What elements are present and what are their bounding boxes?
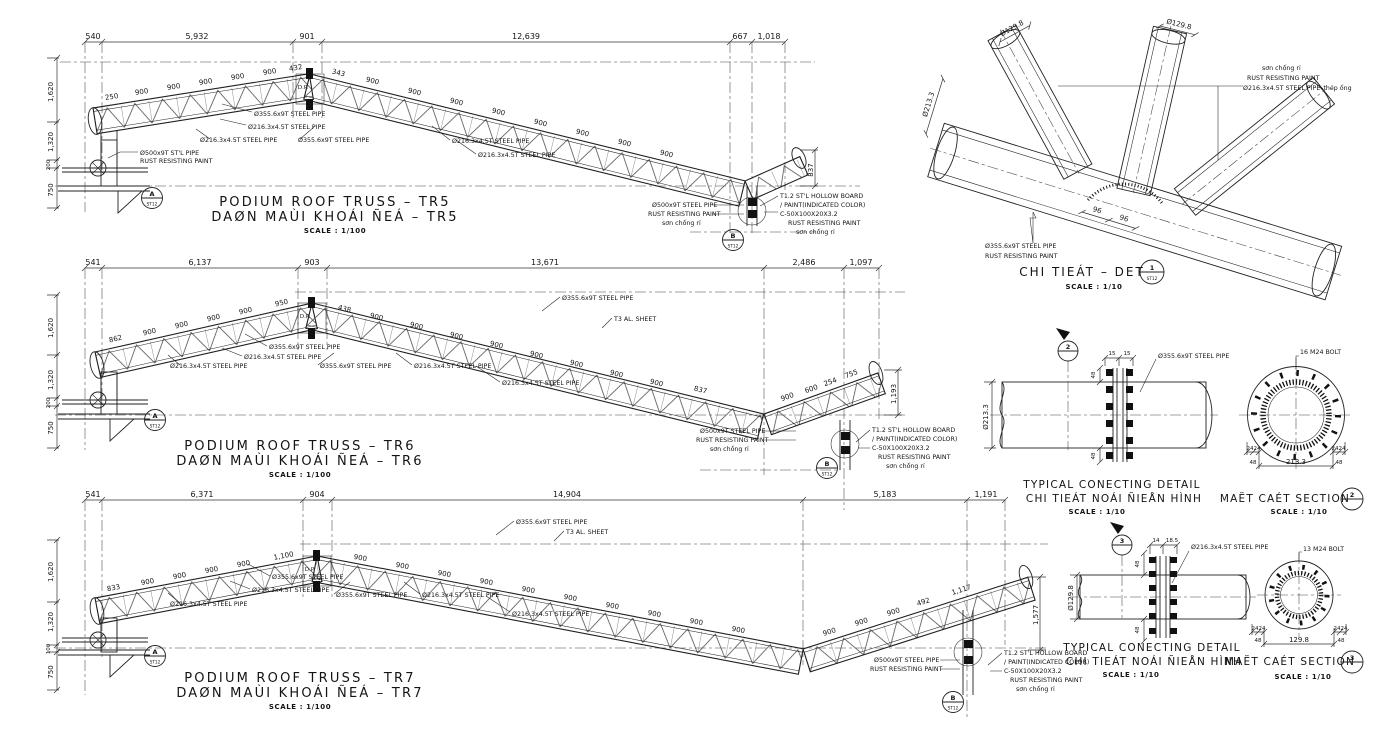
scale-label: SCALE : 1/10 <box>1271 508 1328 516</box>
note-label: / PAINT(INDICATED COLOR) <box>780 202 865 209</box>
dim-label: 12,639 <box>512 32 540 41</box>
note-label: C-50X100X20X3.2 <box>1004 668 1062 675</box>
note-label: C-50X100X20X3.2 <box>872 445 930 452</box>
dim-label: 14 <box>1153 538 1160 544</box>
seg-dim: 1,100 <box>273 550 294 562</box>
pipe-label: Ø216.3x4.5T STEEL PIPE <box>170 362 247 370</box>
pipe-label: Ø355.6x9T STEEL PIPE <box>1158 352 1229 360</box>
section-title: MAËT CAÉT SECTION <box>1220 492 1350 505</box>
seg-dim: 900 <box>689 617 704 627</box>
callout-letter: 1 <box>1150 264 1155 272</box>
note-label: T1.2 ST'L HOLLOW BOARD <box>779 193 863 200</box>
section-2: 16 M24 BOLT 24 24 48 213.3 24 24 48 <box>1239 349 1353 472</box>
pipe-label: Ø216.3x4.5T STEEL PIPE–thép ống <box>1243 84 1352 92</box>
dim-label: 200 <box>46 159 52 170</box>
detail-title: TYPICAL CONECTING DETAIL <box>1022 479 1200 491</box>
seg-dim: 900 <box>449 97 464 108</box>
dim-label: 1,320 <box>47 370 55 390</box>
seg-dim: 900 <box>822 626 837 638</box>
brace-pipe-right <box>1171 76 1336 218</box>
seg-dim: 900 <box>731 625 746 635</box>
seg-dim: 492 <box>916 596 931 608</box>
dim-label: 1,620 <box>47 562 55 582</box>
scale-label: SCALE : 1/100 <box>269 703 331 711</box>
dim-label: 48 <box>1135 626 1141 633</box>
note-label: C-50X100X20X3.2 <box>780 211 838 218</box>
truss-title-vi: DAØN MAÙI KHOÁI ÑEÁ – TR6 <box>176 453 423 469</box>
pipe-label: Ø216.3x4.5T STEEL PIPE <box>1191 543 1268 551</box>
callout-number: 2 <box>1350 491 1355 499</box>
pipe-label: Ø500x9T STEEL PIPE <box>700 427 765 435</box>
dim-label: 48 <box>1255 638 1262 644</box>
joint-detail: Ø129.8 Ø129.8 Ø213.3 96 96 sơn chống rỉ … <box>916 15 1352 302</box>
connect-detail-3: 14 18.5 48 48 Ø129.8 Ø216.3x4.5T STEEL P… <box>1062 522 1363 681</box>
seg-dim: 900 <box>238 306 253 317</box>
dim-label: 200 <box>46 397 52 408</box>
support-left-tr7: A ST12 <box>58 618 166 677</box>
note-label: sơn chống rỉ <box>1262 64 1301 72</box>
truss-title-vi: DAØN MAÙI KHOÁI ÑEÁ – TR7 <box>176 685 423 701</box>
dim-label: 1,018 <box>758 32 781 41</box>
truss-tr6: 541 6,137 903 13,671 2,486 1,097 1,620 1… <box>46 258 957 510</box>
pipe-label: Ø216.3x4.5T STEEL PIPE <box>414 362 491 370</box>
detail-title-vi: CHI TIEÁT NOÁI ÑIEÅN HÌNH <box>1026 492 1202 505</box>
dp-label: D.P. <box>298 85 308 91</box>
scale-label: SCALE : 1/100 <box>269 471 331 479</box>
scale-label: SCALE : 1/10 <box>1066 283 1123 291</box>
seg-dim: 254 <box>823 376 839 388</box>
pipe-label: Ø500x9T STEEL PIPE <box>652 201 717 209</box>
pipe-label: Ø216.3x4.5T STEEL PIPE <box>452 137 529 145</box>
note-label: RUST RESISTING PAINT <box>1010 677 1083 684</box>
seg-dim: 900 <box>134 87 148 97</box>
note-label: T1.2 ST'L HOLLOW BOARD <box>871 427 955 434</box>
bolt-label: 16 M24 BOLT <box>1300 349 1341 356</box>
dp-label: D.P. <box>305 567 315 573</box>
seg-dim: 900 <box>198 77 212 87</box>
dim-label: 750 <box>47 183 55 196</box>
dim-label: 96 <box>1118 213 1129 223</box>
callout-sheet: ST12 <box>1147 276 1158 282</box>
seg-dim: 900 <box>854 616 869 628</box>
dim-label: 1,097 <box>850 258 873 267</box>
seg-dim: 900 <box>437 569 452 579</box>
pipe-label: Ø216.3x4.5T STEEL PIPE <box>244 353 321 361</box>
note-label: RUST RESISTING PAINT <box>140 158 213 165</box>
dim-label: 13,671 <box>531 258 559 267</box>
connect-detail-2: 15 15 48 48 Ø213.3 Ø355.6x9T STEEL PIPE … <box>982 328 1363 516</box>
dim-label: 1,577 <box>1032 605 1040 625</box>
callout-number: 3 <box>1350 654 1355 662</box>
dim-label: Ø129.8 <box>1166 18 1193 32</box>
callout-number: 2 <box>1066 343 1071 351</box>
note-label: sơn chống rỉ <box>796 228 835 236</box>
callout-letter: A <box>149 190 154 198</box>
pipe-label: Ø355.6x9T STEEL PIPE <box>516 518 587 526</box>
note-label: RUST RESISTING PAINT <box>1247 75 1320 82</box>
note-label: RUST RESISTING PAINT <box>878 454 951 461</box>
dim-label: 6,137 <box>189 258 212 267</box>
dp-label: D.P. <box>300 314 310 320</box>
seg-dim: 900 <box>617 138 632 149</box>
callout-sheet: ST12 <box>150 660 161 666</box>
support-left-tr5: A ST12 <box>58 131 163 213</box>
scale-label: SCALE : 1/10 <box>1103 671 1160 679</box>
seg-dim: 900 <box>563 593 578 603</box>
seg-dim: 900 <box>142 327 157 338</box>
dim-label: 5,932 <box>186 32 209 41</box>
pipe-label: Ø500x9T STEEL PIPE <box>874 656 939 664</box>
callout-sheet: ST12 <box>948 706 959 712</box>
dim-label: 837 <box>807 163 815 176</box>
pipe-label: Ø355.6x9T STEEL PIPE <box>269 343 340 351</box>
pipe-label: Ø355.6x9T STEEL PIPE <box>985 242 1056 250</box>
pipe-label: Ø355.6x9T STEEL PIPE <box>320 362 391 370</box>
chord-dim: Ø213.3 <box>916 73 947 138</box>
seg-dim: 900 <box>886 606 901 618</box>
support-left-tr6: A ST12 <box>58 372 166 441</box>
seg-dim: 900 <box>395 561 410 571</box>
callout-sheet: ST12 <box>822 472 833 478</box>
truss-tr7: 541 6,371 904 14,904 5,183 1,191 1,620 1… <box>46 490 1089 718</box>
seg-dim: 900 <box>353 553 368 563</box>
pipe-label: Ø216.3x4.5T STEEL PIPE <box>512 610 589 618</box>
dim-label: 129.8 <box>1289 636 1309 644</box>
callout-letter: B <box>731 232 736 240</box>
seg-dim: 900 <box>780 391 795 403</box>
seg-dim: 900 <box>206 313 221 324</box>
truss-title-vi: DAØN MAÙI KHOÁI ÑEÁ – TR5 <box>211 209 458 225</box>
dim-label: 100 <box>46 643 52 654</box>
dim-label: 24 <box>1339 446 1346 452</box>
dim-label: 1,620 <box>47 82 55 102</box>
brace-pipe-mid <box>1116 22 1187 197</box>
seg-dim: 862 <box>108 334 123 345</box>
dim-label: 1,193 <box>890 384 898 404</box>
pipe-label: Ø355.6x9T STEEL PIPE <box>336 591 407 599</box>
note-label: sơn chống rỉ <box>886 462 925 470</box>
seg-dim: 900 <box>140 577 155 587</box>
brace-pipe-left <box>986 22 1093 181</box>
note-label: sơn chống rỉ <box>1016 685 1055 693</box>
pipe-label: Ø355.6x9T STEEL PIPE <box>298 136 369 144</box>
dim-label: 750 <box>47 665 55 678</box>
truss-tr5: 540 5,932 901 12,639 667 1,018 1,620 1,3… <box>46 32 865 251</box>
scale-label: SCALE : 1/100 <box>304 227 366 235</box>
seg-dim: 900 <box>172 571 187 581</box>
seg-dim: 900 <box>236 559 251 569</box>
seg-dim: 900 <box>365 76 380 87</box>
detail-title: TYPICAL CONECTING DETAIL <box>1062 642 1240 654</box>
seg-dim: 600 <box>804 383 819 395</box>
dim-label: 540 <box>85 32 100 41</box>
dim-label: Ø213.3 <box>982 404 990 430</box>
truss-drawing-svg: 540 5,932 901 12,639 667 1,018 1,620 1,3… <box>0 0 1381 739</box>
dim-label: 903 <box>304 258 319 267</box>
seg-dim: 900 <box>407 87 422 98</box>
seg-dim: 900 <box>491 107 506 118</box>
pipe-label: Ø355.6x9T STEEL PIPE <box>562 294 633 302</box>
bolt-label: 13 M24 BOLT <box>1303 546 1344 553</box>
seg-dim: 833 <box>106 583 121 593</box>
pipe-label: Ø216.3x4.5T STEEL PIPE <box>200 136 277 144</box>
pipe-label: Ø216.3x4.5T STEEL PIPE <box>478 151 555 159</box>
dim-label: 5,183 <box>874 490 897 499</box>
dim-label: 750 <box>47 421 55 434</box>
seg-dim: 900 <box>533 118 548 129</box>
dim-label: 48 <box>1091 371 1097 378</box>
dim-label: 213.3 <box>1286 458 1306 466</box>
seg-dim: 900 <box>174 320 189 331</box>
dim-label: 1,191 <box>975 490 998 499</box>
note-label: T3 AL. SHEET <box>613 316 656 323</box>
dim-label: 48 <box>1336 460 1343 466</box>
dim-label: 901 <box>299 32 314 41</box>
detail-title: CHI TIEÁT – DET <box>1019 264 1145 279</box>
dim-label: Ø129.8 <box>1067 585 1075 611</box>
truss-title: PODIUM ROOF TRUSS – TR5 <box>219 195 451 210</box>
dim-label: 24 <box>1259 626 1266 632</box>
dim-label: 2,486 <box>793 258 816 267</box>
gap-dim: 96 96 <box>1078 202 1141 233</box>
dim-label: Ø213.3 <box>921 91 936 118</box>
dim-label: 48 <box>1135 560 1141 567</box>
dim-label: 15 <box>1109 351 1116 357</box>
pipe-label: Ø216.3x4.5T STEEL PIPE <box>502 379 579 387</box>
callout-letter: B <box>951 694 956 702</box>
cad-drawing-sheet: 540 5,932 901 12,639 667 1,018 1,620 1,3… <box>0 0 1381 739</box>
note-label: RUST RESISTING PAINT <box>788 220 861 227</box>
seg-dim: 343 <box>331 68 346 79</box>
note-label: sơn chống rỉ <box>662 219 701 227</box>
truss-title: PODIUM ROOF TRUSS – TR6 <box>184 439 416 454</box>
note-label: RUST RESISTING PAINT <box>870 666 943 673</box>
dim-label: 24 <box>1254 446 1261 452</box>
callout-letter: A <box>152 412 157 420</box>
note-label: RUST RESISTING PAINT <box>648 211 721 218</box>
callout-sheet: ST12 <box>147 202 158 208</box>
dim-label: 48 <box>1338 638 1345 644</box>
pipe-label: Ø500x9T ST'L PIPE <box>140 149 199 157</box>
pipe-label: Ø216.3x4.5T STEEL PIPE <box>248 123 325 131</box>
section-title: MAËT CAÉT SECTION <box>1225 655 1355 668</box>
pipe-label: Ø216.3x4.5T STEEL PIPE <box>170 600 247 608</box>
dim-label: 48 <box>1091 452 1097 459</box>
detail-title-vi: CHI TIEÁT NOÁI ÑIEÅN HÌNH <box>1066 655 1242 668</box>
note-label: sơn chống rỉ <box>710 445 749 453</box>
scale-label: SCALE : 1/10 <box>1275 673 1332 681</box>
pipe-label: Ø355.6x9T STEEL PIPE <box>254 110 325 118</box>
seg-dim: 900 <box>647 609 662 619</box>
seg-dim: 900 <box>521 585 536 595</box>
seg-dim: 900 <box>166 82 180 92</box>
seg-dim: 900 <box>479 577 494 587</box>
truss-title: PODIUM ROOF TRUSS – TR7 <box>184 671 416 686</box>
callout-sheet: ST12 <box>728 244 739 250</box>
dim-label: 14,904 <box>553 490 581 499</box>
note-label: T3 AL. SHEET <box>565 529 608 536</box>
callout-sheet: ST12 <box>150 424 161 430</box>
dim-label: 1,320 <box>47 612 55 632</box>
seg-dim: 900 <box>605 601 620 611</box>
callout-number: 3 <box>1120 537 1125 545</box>
dim-label: 15 <box>1124 351 1131 357</box>
dim-label: 1,620 <box>47 318 55 338</box>
dim-label: 18.5 <box>1166 538 1179 544</box>
seg-dim: 900 <box>204 565 219 575</box>
seg-dim: 432 <box>288 63 302 73</box>
seg-dim: 900 <box>262 67 276 77</box>
seg-dim: 755 <box>844 368 859 380</box>
dim-label: 541 <box>85 258 100 267</box>
dim-label: 96 <box>1092 205 1103 215</box>
brace-dim: Ø129.8 <box>1156 16 1200 39</box>
dim-label: 667 <box>732 32 747 41</box>
scale-label: SCALE : 1/10 <box>1069 508 1126 516</box>
dim-label: 541 <box>85 490 100 499</box>
seg-dim: 900 <box>659 149 674 160</box>
callout-letter: B <box>825 460 830 468</box>
note-label: / PAINT(INDICATED COLOR) <box>872 436 957 443</box>
note-label: RUST RESISTING PAINT <box>985 253 1058 260</box>
pipe-label: Ø216.3x4.5T STEEL PIPE <box>252 586 329 594</box>
dim-label: 904 <box>309 490 324 499</box>
seg-dim: 900 <box>575 128 590 139</box>
dim-label: 24 <box>1341 626 1348 632</box>
pipe-label: Ø216.3x4.5T STEEL PIPE <box>422 591 499 599</box>
seg-dim: 900 <box>230 72 244 82</box>
seg-dim: 837 <box>693 385 708 396</box>
note-label: RUST RESISTING PAINT <box>696 437 769 444</box>
pipe-label: Ø355.6x9T STEEL PIPE <box>272 573 343 581</box>
callout-letter: A <box>152 648 157 656</box>
dim-label: 48 <box>1250 460 1257 466</box>
dim-label: 6,371 <box>191 490 214 499</box>
seg-dim: 250 <box>104 92 118 102</box>
section-3: 13 M24 BOLT 24 24 48 129.8 24 24 48 <box>1249 546 1349 647</box>
dim-label: 1,320 <box>47 132 55 152</box>
seg-dim: 950 <box>274 298 289 309</box>
seg-dim: 1,117 <box>951 583 973 597</box>
